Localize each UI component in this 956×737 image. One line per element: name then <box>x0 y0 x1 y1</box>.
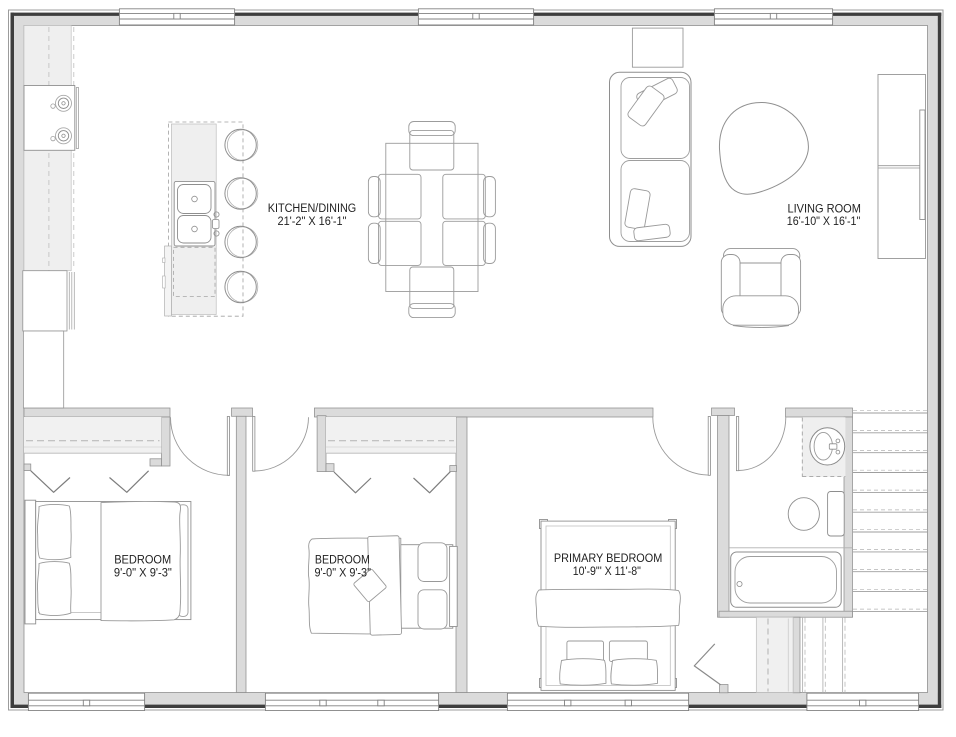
svg-text:BEDROOM: BEDROOM <box>315 552 370 566</box>
svg-text:PRIMARY BEDROOM: PRIMARY BEDROOM <box>554 551 662 565</box>
svg-text:9'-0" X 9'-3": 9'-0" X 9'-3" <box>314 566 371 580</box>
svg-text:21'-2" X 16'-1": 21'-2" X 16'-1" <box>278 214 347 228</box>
svg-text:16'-10" X 16'-1": 16'-10" X 16'-1" <box>787 214 861 228</box>
svg-text:9'-0" X 9'-3": 9'-0" X 9'-3" <box>114 566 172 580</box>
svg-text:10'-9"' X 11'-8": 10'-9"' X 11'-8" <box>573 564 641 578</box>
svg-text:BEDROOM: BEDROOM <box>114 552 171 566</box>
